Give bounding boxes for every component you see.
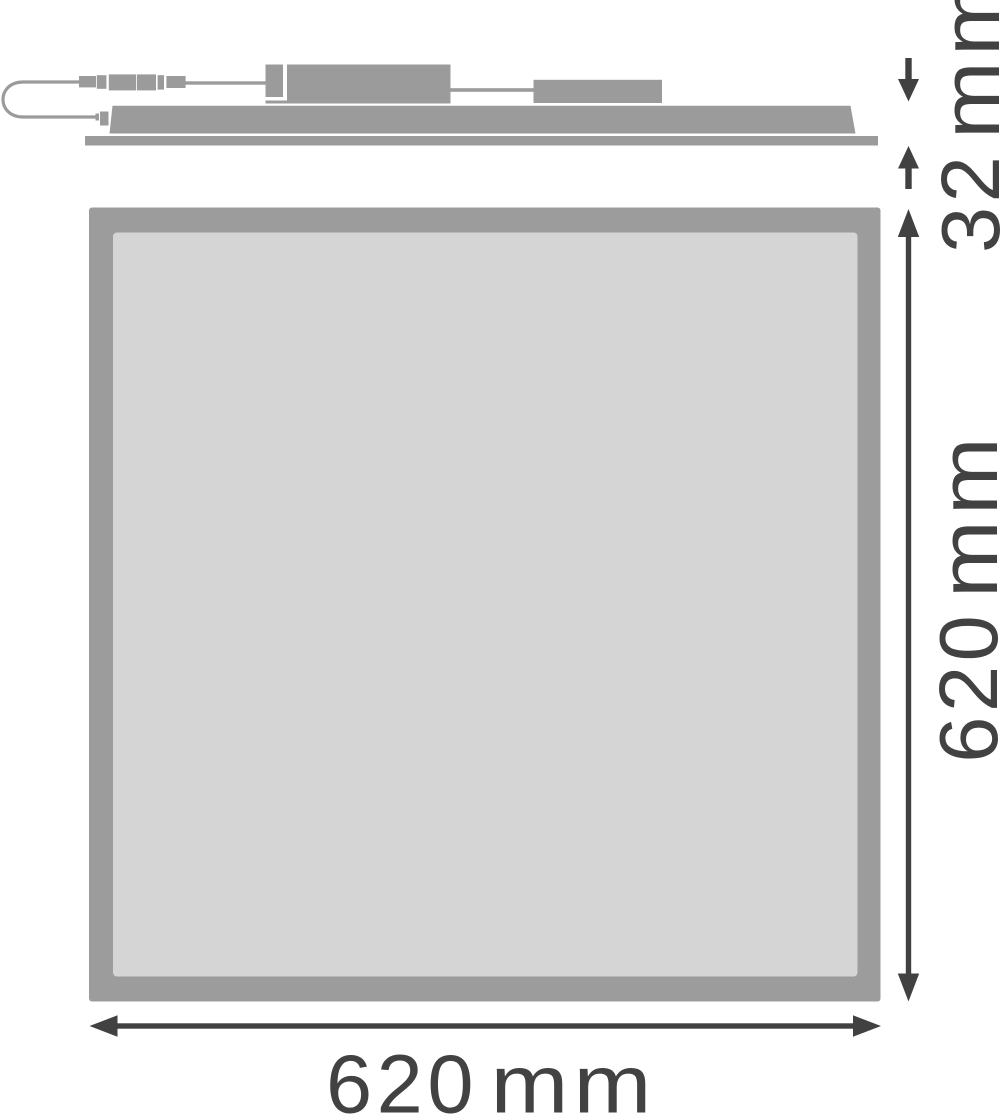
svg-text:32 mm: 32 mm — [924, 0, 1000, 253]
svg-text:620 mm: 620 mm — [326, 1038, 657, 1118]
svg-text:620 mm: 620 mm — [922, 432, 1000, 763]
